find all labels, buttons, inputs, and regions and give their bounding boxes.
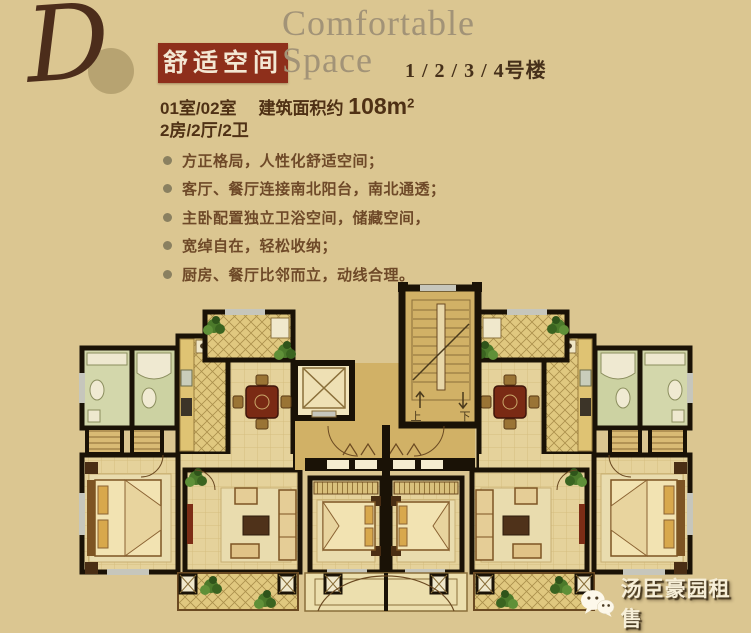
bullet-dot (163, 241, 172, 250)
feature-text: 方正格局，人性化舒适空间； (182, 150, 384, 171)
window (420, 285, 456, 291)
feature-list: 方正格局，人性化舒适空间；客厅、餐厅连接南北阳台，南北通透；主卧配置独立卫浴空间… (163, 146, 446, 289)
stairs-down-label: 下 (460, 411, 471, 423)
elevator (295, 363, 352, 418)
staircase: 上 下 (398, 282, 482, 425)
watermark: 汤臣豪园租售 (579, 573, 751, 633)
floor-plan: 上 下 (75, 278, 695, 614)
bullet-dot (163, 184, 172, 193)
wechat-icon (579, 588, 615, 618)
title-en-line2: Space (282, 39, 373, 81)
bullet-dot (163, 213, 172, 222)
stairs-up-label: 上 (411, 410, 422, 423)
feature-text: 客厅、餐厅连接南北阳台，南北通透； (182, 178, 446, 199)
center-wall (382, 425, 390, 573)
summary-layout: 2房/2厅/2卫 (160, 116, 249, 141)
feature-item: 客厅、餐厅连接南北阳台，南北通透； (163, 175, 446, 204)
title-box-cn: 舒适空间 (158, 43, 288, 83)
flyer-page: { "logo": { "letter": "D" }, "header": {… (0, 0, 751, 618)
title-en-line1: Comfortable (282, 2, 475, 44)
feature-text: 主卧配置独立卫浴空间，储藏空间， (182, 207, 430, 228)
watermark-text: 汤臣豪园租售 (621, 573, 751, 633)
area-value: 108m (348, 93, 407, 119)
entry-terrace (305, 573, 467, 611)
building-numbers: 1 / 2 / 3 / 4号楼 (405, 54, 547, 83)
feature-text: 宽绰自在，轻松收纳； (182, 235, 337, 256)
area-superscript: 2 (407, 95, 414, 110)
feature-item: 主卧配置独立卫浴空间，储藏空间， (163, 203, 446, 232)
area-label: 建筑面积约 (259, 99, 344, 118)
monogram-letter-d: D (22, 0, 113, 103)
feature-item: 方正格局，人性化舒适空间； (163, 146, 446, 175)
bullet-dot (163, 156, 172, 165)
feature-item: 宽绰自在，轻松收纳； (163, 232, 446, 261)
